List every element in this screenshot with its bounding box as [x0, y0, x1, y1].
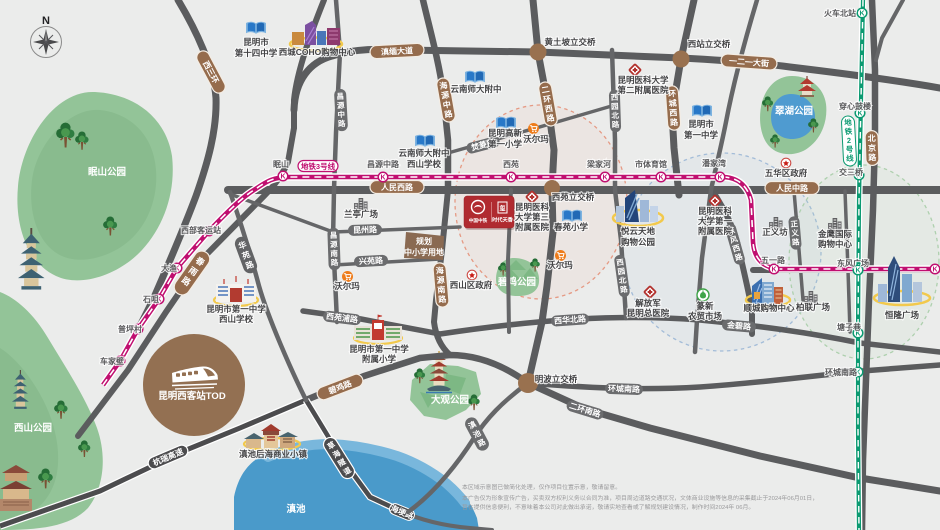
svg-text:昆明医科: 昆明医科	[698, 206, 733, 216]
svg-text:环城南路: 环城南路	[825, 367, 858, 377]
svg-text:兴苑路: 兴苑路	[359, 255, 384, 266]
svg-text:顺城购物中心: 顺城购物中心	[743, 303, 795, 313]
svg-text:附属小学: 附属小学	[362, 354, 397, 364]
svg-text:眠山公园: 眠山公园	[88, 166, 126, 178]
svg-text:昌源中路: 昌源中路	[367, 159, 400, 169]
svg-text:黄土坡立交桥: 黄土坡立交桥	[544, 37, 596, 47]
svg-text:石咀: 石咀	[142, 295, 159, 304]
svg-text:西站立交桥: 西站立交桥	[688, 39, 731, 49]
svg-text:附属医院: 附属医院	[698, 226, 733, 236]
svg-text:明波立交桥: 明波立交桥	[535, 374, 578, 384]
svg-text:穿心鼓楼: 穿心鼓楼	[839, 101, 871, 111]
svg-text:梁家河: 梁家河	[586, 159, 611, 169]
svg-text:兰亭广场: 兰亭广场	[344, 209, 379, 219]
svg-text:恒隆广场: 恒隆广场	[885, 310, 920, 320]
svg-text:柏联广场: 柏联广场	[796, 302, 831, 312]
svg-text:第二附属医院: 第二附属医院	[617, 85, 669, 95]
svg-text:环城南路: 环城南路	[608, 383, 641, 394]
svg-text:第十四中学: 第十四中学	[235, 48, 278, 58]
svg-text:本区域示意图已做简化处理，仅作项目位置示意，敬请留意。: 本区域示意图已做简化处理，仅作项目位置示意，敬请留意。	[462, 483, 621, 491]
svg-text:沃尔玛: 沃尔玛	[523, 134, 549, 144]
svg-text:西山学校: 西山学校	[407, 159, 442, 169]
svg-text:翠湖公园: 翠湖公园	[775, 105, 813, 117]
svg-text:人民西路: 人民西路	[381, 182, 414, 192]
svg-text:昆明市: 昆明市	[688, 119, 714, 129]
svg-text:滇池后海商业小镇: 滇池后海商业小镇	[239, 449, 308, 459]
svg-text:昆明西客站TOD: 昆明西客站TOD	[158, 390, 226, 402]
svg-text:云南师大附中: 云南师大附中	[398, 148, 449, 158]
svg-text:潘家湾: 潘家湾	[702, 158, 726, 168]
svg-text:五一路: 五一路	[761, 255, 786, 265]
svg-text:附属医院: 附属医院	[515, 222, 550, 232]
svg-text:大学第三: 大学第三	[515, 212, 550, 222]
svg-text:旨在提供信息便利，不意味着本公司对此做出承诺，敬请实地查看或: 旨在提供信息便利，不意味着本公司对此做出承诺，敬请实地查看或了解规划建设情况，制…	[462, 503, 754, 511]
svg-text:昆明总医院: 昆明总医院	[627, 308, 670, 318]
svg-text:昆明市第一中学: 昆明市第一中学	[349, 344, 409, 354]
svg-text:五华区政府: 五华区政府	[765, 168, 808, 178]
svg-text:西山学校: 西山学校	[219, 314, 254, 324]
svg-text:悦云天地: 悦云天地	[621, 226, 656, 236]
svg-text:市体育馆: 市体育馆	[635, 159, 667, 169]
svg-text:第一中学: 第一中学	[684, 130, 719, 140]
svg-text:西苑立交桥: 西苑立交桥	[552, 192, 595, 202]
svg-text:购物中心: 购物中心	[817, 239, 853, 249]
svg-text:昆明市: 昆明市	[243, 37, 269, 47]
svg-text:地铁3号线: 地铁3号线	[301, 161, 336, 171]
svg-text:普坪村: 普坪村	[118, 324, 142, 334]
svg-text:正义坊: 正义坊	[762, 227, 788, 237]
svg-text:篆新: 篆新	[696, 301, 714, 311]
svg-text:中国中铁: 中国中铁	[469, 217, 488, 224]
svg-text:昆明医科大学: 昆明医科大学	[617, 75, 669, 85]
svg-text:沃尔玛: 沃尔玛	[547, 260, 573, 270]
svg-text:大观公园: 大观公园	[431, 394, 469, 406]
svg-text:眠山: 眠山	[273, 159, 289, 169]
svg-text:时代天香: 时代天香	[492, 216, 514, 224]
svg-text:大渔: 大渔	[161, 263, 177, 273]
svg-text:西城COHO购物中心: 西城COHO购物中心	[279, 47, 356, 57]
svg-text:西部客运站: 西部客运站	[181, 225, 221, 235]
svg-text:中小学用地: 中小学用地	[404, 247, 444, 257]
svg-text:车家壁: 车家壁	[100, 356, 124, 366]
svg-text:购物公园: 购物公园	[620, 237, 655, 247]
svg-text:规划: 规划	[416, 236, 432, 246]
svg-text:沃尔玛: 沃尔玛	[334, 281, 360, 291]
svg-text:东风广场: 东风广场	[837, 258, 869, 268]
svg-text:火车北站: 火车北站	[824, 8, 856, 18]
svg-text:金鹰国际: 金鹰国际	[817, 229, 853, 239]
svg-text:昆明市第一中学: 昆明市第一中学	[206, 304, 266, 314]
svg-text:云南师大附中: 云南师大附中	[450, 84, 501, 94]
svg-text:西苑: 西苑	[503, 159, 519, 169]
svg-text:玺: 玺	[499, 205, 505, 213]
svg-text:西山公园: 西山公园	[14, 422, 52, 434]
svg-text:本广告仅为形象宣传广告，买卖双方权利义务以合同为准，项目周边: 本广告仅为形象宣传广告，买卖双方权利义务以合同为准，项目周边道路交通状况，文体商…	[462, 494, 818, 502]
svg-text:滇缅大道: 滇缅大道	[381, 45, 413, 57]
svg-text:大学第一: 大学第一	[698, 216, 733, 226]
svg-text:西山区政府: 西山区政府	[450, 280, 493, 290]
svg-text:滇池: 滇池	[286, 503, 306, 515]
svg-text:昆明医科: 昆明医科	[515, 202, 550, 212]
svg-text:昆州路: 昆州路	[353, 224, 378, 235]
svg-text:N: N	[42, 15, 50, 27]
svg-text:春苑小学: 春苑小学	[553, 222, 589, 232]
svg-text:农贸市场: 农贸市场	[687, 311, 723, 321]
svg-text:人民中路: 人民中路	[776, 183, 809, 193]
svg-text:解放军: 解放军	[635, 298, 661, 308]
svg-text:昆明高新: 昆明高新	[488, 128, 523, 138]
svg-text:第一小学: 第一小学	[488, 139, 523, 149]
svg-text:交三桥: 交三桥	[839, 167, 864, 177]
svg-text:碧鸡公园: 碧鸡公园	[497, 276, 536, 288]
svg-text:塘子巷: 塘子巷	[837, 322, 862, 332]
